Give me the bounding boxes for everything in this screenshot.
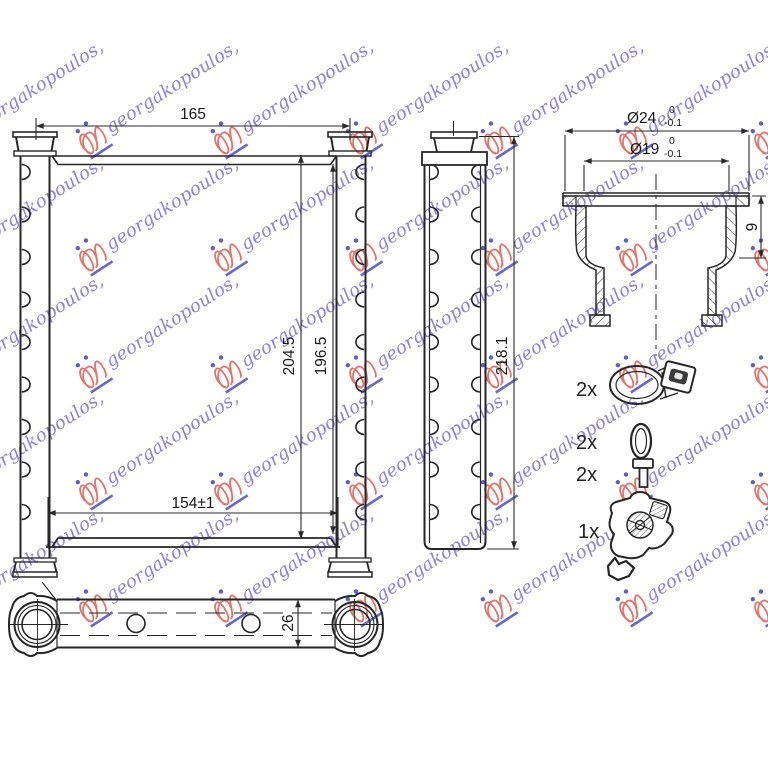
side-body-innerwalls xyxy=(430,165,481,543)
dim-core-width-154: 154±1 xyxy=(172,495,215,512)
tube-dimple xyxy=(472,505,480,520)
tube-dimple xyxy=(356,207,364,222)
tube-dimple xyxy=(22,292,30,307)
watermark-instance xyxy=(0,147,110,276)
dim-outer-dia: Ø24 xyxy=(627,110,657,127)
mounting-bracket-drawing xyxy=(608,492,673,580)
tube-dimple xyxy=(22,250,30,265)
front-right-foot xyxy=(328,558,372,577)
dim-height-204-5: 204.5 xyxy=(281,337,298,376)
watermark-instance xyxy=(0,381,110,510)
dim-collar-depth: 9 xyxy=(744,223,761,232)
dim-inner-tol-top: 0 xyxy=(669,135,675,147)
part-qty-oring: 2x xyxy=(576,432,597,454)
tube-dimple xyxy=(430,292,438,307)
dim-outer-tol-bottom: -0.1 xyxy=(664,117,682,129)
bottom-hole-right xyxy=(242,615,260,633)
heater-core-drawing: 165 204.5 196.5 154±1 218.1 Ø24 xyxy=(9,104,766,656)
tube-dimple xyxy=(430,250,438,265)
tube-dimple xyxy=(472,377,480,392)
dim-inner-dia: Ø19 xyxy=(630,141,659,158)
tube-dimple xyxy=(472,335,480,350)
watermark-instance xyxy=(0,264,110,393)
dim-inner-tol-bottom: -0.1 xyxy=(664,148,682,160)
tube-dimple xyxy=(472,207,480,222)
dim-outer-tol-top: 0 xyxy=(669,104,675,116)
tube-dimple xyxy=(430,377,438,392)
tube-dimple xyxy=(472,462,480,477)
tube-dimple xyxy=(356,420,364,435)
side-fitting-cup xyxy=(434,138,474,152)
dim-height-218-1: 218.1 xyxy=(494,337,511,376)
bottom-view: 26 xyxy=(9,582,383,656)
side-header-tank xyxy=(422,152,487,165)
tube-dimple xyxy=(472,250,480,265)
o-ring-drawing xyxy=(631,424,651,458)
tube-dimple xyxy=(356,335,364,350)
part-qty-bracket: 1x xyxy=(578,521,599,543)
side-body-outline xyxy=(425,165,486,549)
dim-width-165: 165 xyxy=(180,106,206,123)
front-right-channel xyxy=(337,156,366,558)
tube-dimple xyxy=(430,165,438,180)
tube-dimple xyxy=(22,165,30,180)
dim-height-196-5: 196.5 xyxy=(313,337,330,376)
tube-dimple xyxy=(430,462,438,477)
bottom-hole-left xyxy=(127,615,145,633)
tube-dimple xyxy=(22,462,30,477)
tube-dimple xyxy=(22,505,30,520)
front-left-fitting xyxy=(13,132,57,156)
part-qty-screw: 2x xyxy=(576,464,597,486)
tube-dimple xyxy=(430,505,438,520)
dim-depth-26: 26 xyxy=(280,614,297,631)
technical-drawing-canvas: georgakopoulos, xyxy=(0,0,768,768)
part-qty-clamp: 2x xyxy=(576,379,597,401)
tube-dimple xyxy=(22,377,30,392)
